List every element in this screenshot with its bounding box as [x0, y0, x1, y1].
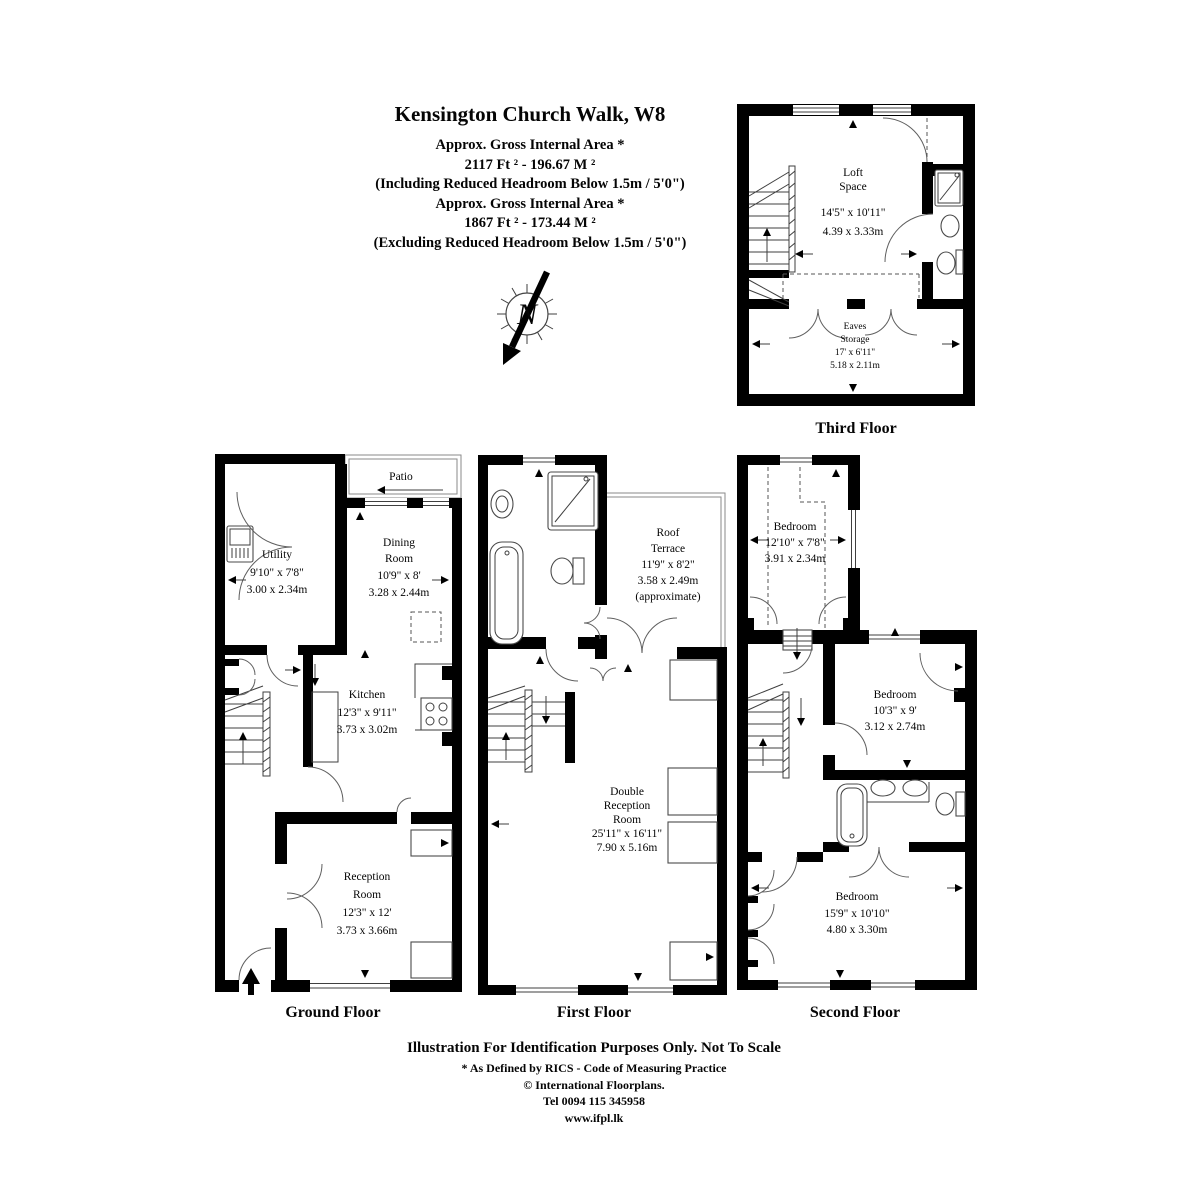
footer-block: Illustration For Identification Purposes…	[294, 1040, 894, 1126]
second-floor-plan: Bedroom 12'10" x 7'8" 3.91 x 2.34m Bedro…	[737, 452, 977, 1000]
room-name: Loft	[843, 167, 864, 179]
disclaimer-text: Illustration For Identification Purposes…	[294, 1040, 894, 1057]
bathtub-icon	[490, 542, 523, 644]
windows	[516, 455, 673, 995]
room-dim-m: 3.73 x 3.66m	[337, 925, 398, 937]
walls	[478, 455, 727, 995]
doors	[546, 607, 677, 681]
room-dim-m: 7.90 x 5.16m	[597, 842, 658, 854]
bedroom-back-label: Bedroom 15'9" x 10'10" 4.80 x 3.30m	[824, 891, 889, 936]
copyright-text: © International Floorplans.	[294, 1077, 894, 1094]
shower-icon	[935, 170, 963, 206]
room-dim-ft: 25'11" x 16'11"	[592, 828, 662, 840]
room-name: Dining	[383, 537, 415, 549]
room-name: Reception	[344, 871, 391, 883]
room-dim-m: 3.73 x 3.02m	[337, 724, 398, 736]
shower-icon	[548, 472, 598, 530]
eaves-room-label: Eaves Storage 17' x 6'11" 5.18 x 2.11m	[830, 322, 880, 371]
utility-sink-icon	[227, 526, 253, 562]
room-note: (approximate)	[635, 591, 700, 603]
bedroom-front-label: Bedroom 12'10" x 7'8" 3.91 x 2.34m	[765, 521, 826, 565]
room-name: Room	[353, 889, 381, 901]
room-dim-ft: 11'9" x 8'2"	[641, 559, 694, 571]
basin-icon	[941, 215, 959, 237]
patio-label: Patio	[389, 471, 413, 483]
room-name: Room	[613, 814, 641, 826]
toilet-icon	[937, 250, 963, 274]
first-floor-plan: Roof Terrace 11'9" x 8'2" 3.58 x 2.49m (…	[478, 452, 727, 1000]
second-floor-label: Second Floor	[755, 1004, 955, 1022]
third-floor-plan: Loft Space 14'5" x 10'11" 4.39 x 3.33m E…	[737, 104, 975, 406]
kitchen-room-label: Kitchen 12'3" x 9'11" 3.73 x 3.02m	[337, 689, 398, 736]
basin-icon	[491, 490, 513, 518]
room-dim-ft: 12'10" x 7'8"	[765, 537, 825, 549]
room-name: Utility	[262, 549, 292, 561]
room-dim-m: 5.18 x 2.11m	[830, 361, 880, 371]
utility-room-label: Utility 9'10" x 7'8" 3.00 x 2.34m	[247, 549, 308, 596]
chimney-niches	[411, 830, 452, 978]
entrance-arrow-icon	[242, 968, 260, 995]
room-dim-ft: 10'3" x 9'	[873, 705, 916, 717]
first-floor-label: First Floor	[494, 1004, 694, 1022]
room-dim-m: 3.12 x 2.74m	[865, 721, 926, 733]
room-dim-ft: 10'9" x 8'	[377, 570, 420, 582]
room-name: Kitchen	[349, 689, 386, 701]
room-dim-ft: 15'9" x 10'10"	[824, 908, 889, 920]
roof-terrace-label: Roof Terrace 11'9" x 8'2" 3.58 x 2.49m (…	[635, 527, 700, 603]
skylight-dashed-square	[411, 612, 441, 642]
stairs-icon	[488, 686, 565, 772]
room-name: Room	[385, 553, 413, 565]
third-floor-label: Third Floor	[756, 420, 956, 438]
phone-number: Tel 0094 115 345958	[294, 1093, 894, 1110]
room-name: Eaves	[844, 322, 867, 332]
room-name: Roof	[657, 527, 680, 539]
reception-room-label: Reception Room 12'3" x 12' 3.73 x 3.66m	[337, 871, 398, 937]
room-dim-m: 4.39 x 3.33m	[823, 226, 884, 238]
room-name: Space	[839, 181, 866, 193]
room-dim-m: 3.28 x 2.44m	[369, 587, 430, 599]
ground-floor-label: Ground Floor	[233, 1004, 433, 1022]
compass-rose-icon: N	[455, 250, 605, 400]
stairs-icon	[225, 686, 270, 776]
dining-room-label: Dining Room 10'9" x 8' 3.28 x 2.44m	[369, 537, 430, 599]
room-name: Bedroom	[836, 891, 879, 903]
room-dim-ft: 17' x 6'11"	[835, 348, 875, 358]
room-dim-ft: 12'3" x 12'	[342, 907, 391, 919]
room-dim-m: 3.00 x 2.34m	[247, 584, 308, 596]
reduced-headroom-dashed-line	[783, 274, 919, 298]
room-name: Bedroom	[874, 689, 917, 701]
room-dim-m: 4.80 x 3.30m	[827, 924, 888, 936]
room-name: Double	[610, 786, 644, 798]
room-dim-ft: 14'5" x 10'11"	[821, 207, 886, 219]
room-dim-ft: 12'3" x 9'11"	[337, 707, 396, 719]
room-dim-ft: 9'10" x 7'8"	[250, 567, 304, 579]
stairs-icon	[748, 684, 805, 778]
loft-room-label: Loft Space 14'5" x 10'11" 4.39 x 3.33m	[821, 167, 886, 238]
steps-icon	[783, 628, 812, 660]
room-name: Bedroom	[774, 521, 817, 533]
ground-floor-plan: Patio Utility 9'10" x 7'8" 3.00 x 2.34m …	[215, 452, 462, 1004]
basin-icons	[867, 780, 929, 802]
bedroom-mid-label: Bedroom 10'3" x 9' 3.12 x 2.74m	[865, 689, 926, 733]
stairs-icon	[749, 166, 795, 306]
bathtub-icon	[837, 784, 867, 846]
toilet-icon	[551, 558, 584, 584]
compass-north-letter: N	[516, 298, 539, 331]
double-reception-label: Double Reception Room 25'11" x 16'11" 7.…	[592, 786, 662, 854]
toilet-icon	[936, 792, 965, 816]
hob-icon	[421, 698, 452, 730]
room-dim-m: 3.58 x 2.49m	[638, 575, 699, 587]
website-url: www.ifpl.lk	[294, 1110, 894, 1127]
room-name: Reception	[604, 800, 651, 812]
rics-note: * As Defined by RICS - Code of Measuring…	[294, 1060, 894, 1077]
room-name: Terrace	[651, 543, 685, 555]
chimney-niches	[668, 660, 717, 980]
room-dim-m: 3.91 x 2.34m	[765, 553, 826, 565]
room-name: Storage	[840, 335, 869, 345]
